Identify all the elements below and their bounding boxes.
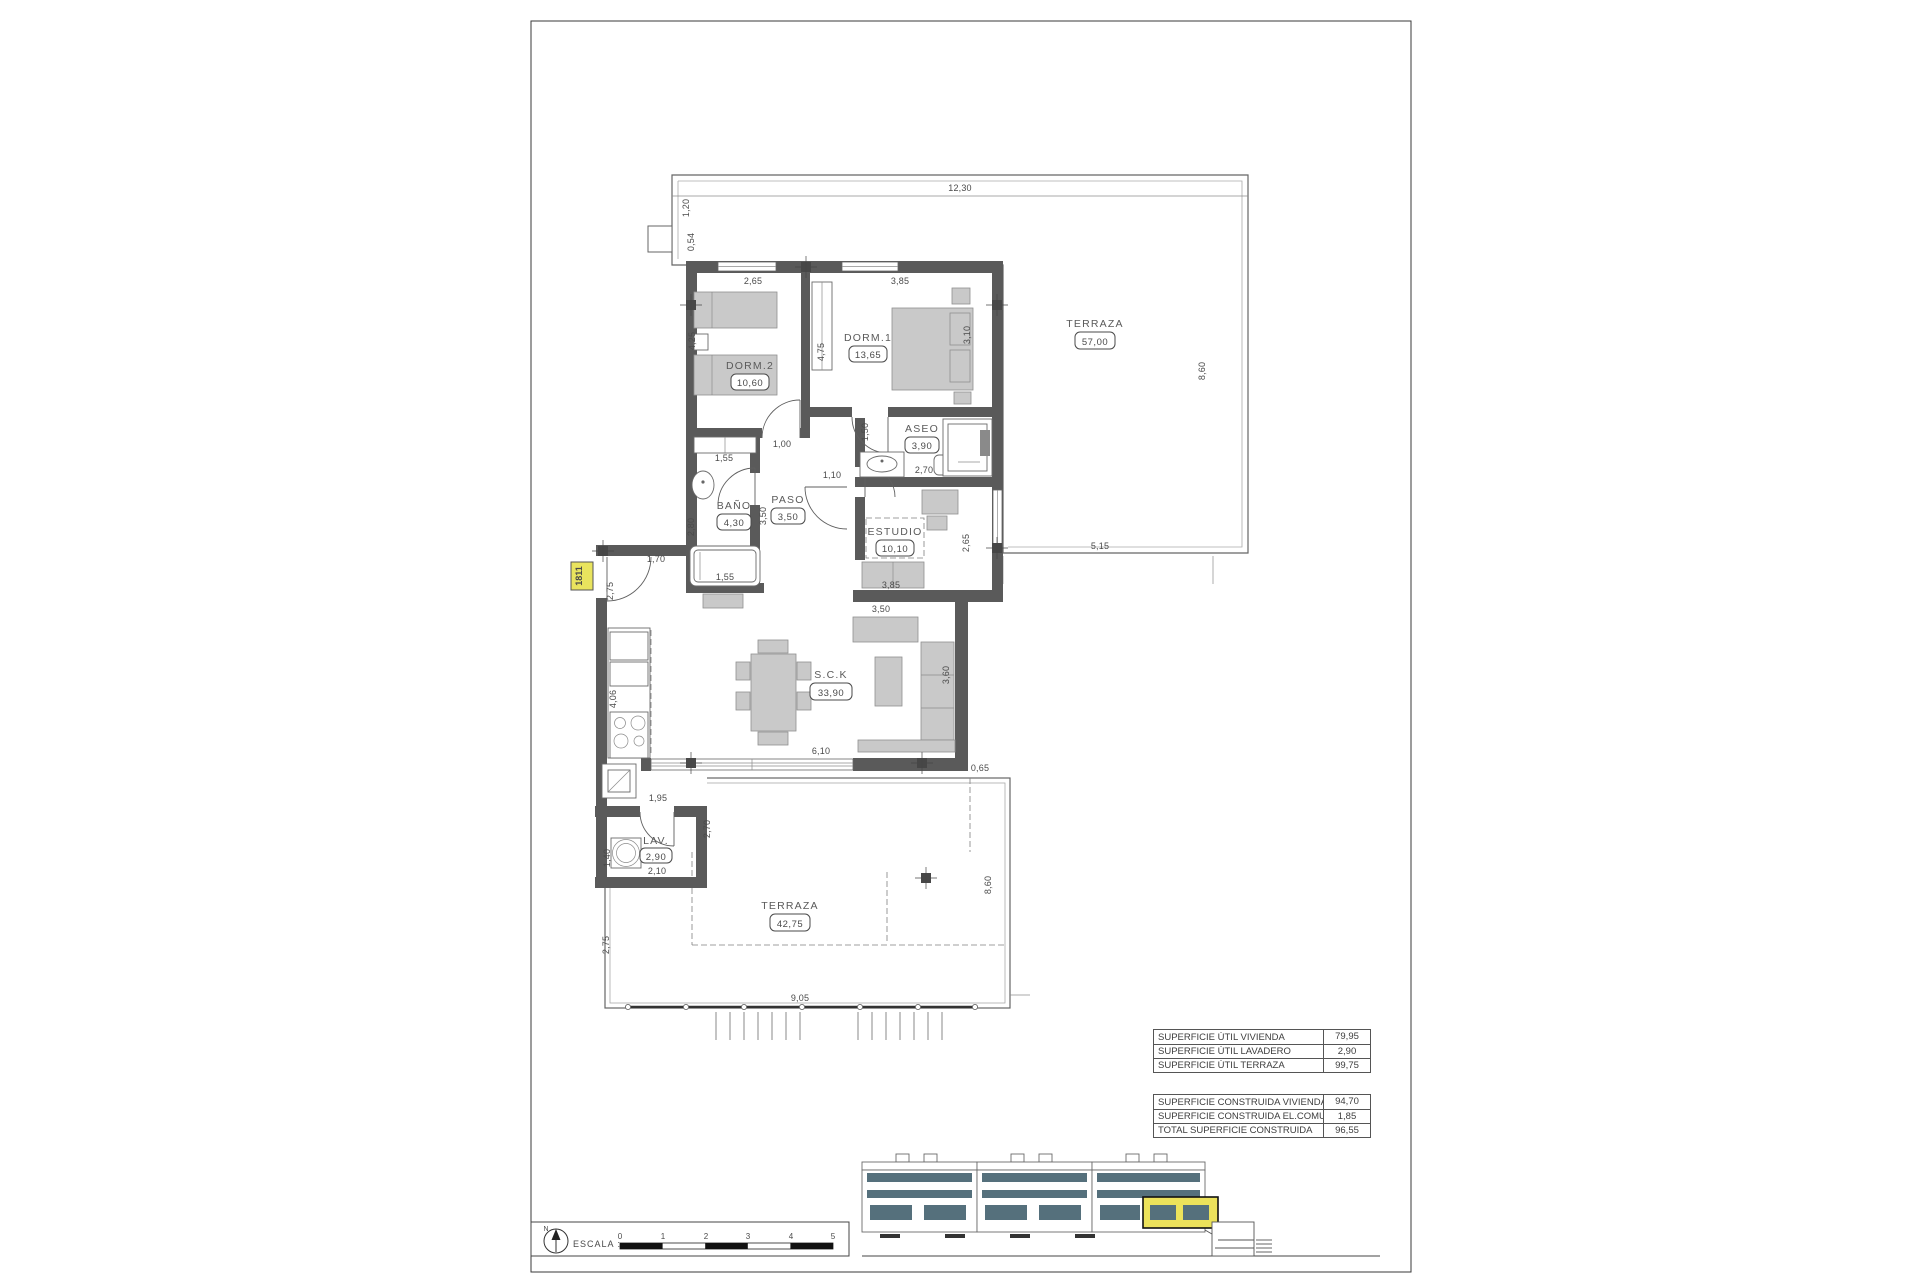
dining-table [751,654,796,731]
desk-chair [927,516,947,530]
dorm1-window [842,262,898,271]
svg-text:3,10: 3,10 [962,326,972,344]
sofa-top [853,617,918,642]
dim-terrace-top-width: 12,30 [948,183,972,193]
svg-text:5: 5 [831,1232,836,1241]
svg-text:2,65: 2,65 [961,534,971,552]
svg-text:3,50: 3,50 [778,512,799,523]
svg-text:1,00: 1,00 [773,439,791,449]
room-label-aseo: ASEO3,90 [905,423,939,453]
svg-text:1,70: 1,70 [647,554,665,564]
useful-surface-table: SUPERFICIE ÚTIL VIVIENDA 79,95 SUPERFICI… [1153,1029,1371,1073]
svg-text:DORM.1: DORM.1 [844,332,892,344]
svg-text:1,95: 1,95 [649,793,667,803]
table-row: TOTAL SUPERFICIE CONSTRUIDA 96,55 [1154,1123,1370,1137]
svg-text:2,70: 2,70 [915,465,933,475]
room-label-dorm2: DORM.210,60 [726,360,774,390]
svg-text:0: 0 [618,1232,623,1241]
svg-text:LAV.: LAV. [643,835,669,847]
coffee-table [875,657,902,706]
elevation-module [977,1154,1092,1232]
towel-radiator [980,430,990,456]
svg-text:33,90: 33,90 [818,688,844,699]
table-row: SUPERFICIE ÚTIL TERRAZA 99,75 [1154,1058,1370,1072]
dorm2-window [718,262,776,271]
table-row: SUPERFICIE CONSTRUIDA EL.COMUNES 1,85 [1154,1109,1370,1123]
svg-text:1,50: 1,50 [860,423,870,441]
svg-text:4,06: 4,06 [608,690,618,708]
svg-text:3,50: 3,50 [758,507,768,525]
svg-text:2,90: 2,90 [646,852,667,863]
svg-text:4: 4 [789,1232,794,1241]
neighbor-wall-stub [648,226,672,252]
living-sliding-door [651,759,853,770]
room-label-bano: BAÑO4,30 [717,499,752,530]
svg-text:42,75: 42,75 [777,919,803,930]
svg-text:2,80: 2,80 [686,518,696,536]
highlighted-unit [1143,1197,1218,1228]
svg-text:4,25: 4,25 [687,332,697,350]
tv-sideboard [858,740,955,752]
svg-text:0,54: 0,54 [686,233,696,251]
svg-text:BAÑO: BAÑO [717,499,752,512]
row-label: SUPERFICIE CONSTRUIDA VIVIENDA [1154,1097,1323,1108]
lav-fixtures [611,838,641,868]
svg-text:3,60: 3,60 [941,666,951,684]
room-label-dorm1: DORM.113,65 [844,332,892,362]
svg-text:2,65: 2,65 [744,276,762,286]
svg-text:4,75: 4,75 [816,343,826,361]
row-value: 1,85 [1323,1110,1370,1123]
svg-text:1,40: 1,40 [602,849,612,867]
row-value: 96,55 [1323,1124,1370,1137]
svg-text:TERRAZA: TERRAZA [761,900,818,912]
svg-text:3,50: 3,50 [872,604,890,614]
row-value: 99,75 [1323,1059,1370,1072]
svg-text:DORM.2: DORM.2 [726,360,774,372]
unit-number-tag: 1811 [571,562,593,590]
row-label: TOTAL SUPERFICIE CONSTRUIDA [1154,1125,1323,1136]
svg-text:8,60: 8,60 [983,876,993,894]
scale-box: N ESCALA : 0 1 2 3 4 5 [531,1222,849,1256]
floor-plan-sheet-page: DORM.210,60 DORM.113,65 ASEO3,90 BAÑO4,3… [0,0,1920,1280]
room-label-sck: S.C.K33,90 [810,669,852,700]
row-label: SUPERFICIE ÚTIL VIVIENDA [1154,1032,1323,1043]
svg-text:10,60: 10,60 [737,378,763,389]
row-label: SUPERFICIE ÚTIL LAVADERO [1154,1046,1323,1057]
svg-text:TERRAZA: TERRAZA [1066,318,1123,330]
hob [610,712,648,758]
svg-text:S.C.K: S.C.K [814,669,847,681]
scale-label: ESCALA : [573,1239,621,1249]
svg-text:1,55: 1,55 [716,572,734,582]
svg-text:PASO: PASO [771,494,804,506]
sofa-right [921,642,954,740]
table-row: SUPERFICIE ÚTIL VIVIENDA 79,95 [1154,1030,1370,1044]
svg-text:5,15: 5,15 [1091,541,1109,551]
svg-text:0,65: 0,65 [971,763,989,773]
floor-plan-drawing: DORM.210,60 DORM.113,65 ASEO3,90 BAÑO4,3… [0,0,1920,1280]
svg-text:3,85: 3,85 [882,580,900,590]
svg-text:2,70: 2,70 [702,820,712,838]
svg-text:1,10: 1,10 [823,470,841,480]
desk [922,490,958,514]
svg-text:4,30: 4,30 [724,518,745,529]
room-label-paso: PASO3,50 [771,494,805,524]
row-label: SUPERFICIE ÚTIL TERRAZA [1154,1060,1323,1071]
table-row: SUPERFICIE CONSTRUIDA VIVIENDA 94,70 [1154,1095,1370,1109]
svg-text:3: 3 [746,1232,751,1241]
svg-text:3,85: 3,85 [891,276,909,286]
row-value: 94,70 [1323,1095,1370,1109]
svg-text:ESTUDIO: ESTUDIO [867,526,922,538]
built-surface-table: SUPERFICIE CONSTRUIDA VIVIENDA 94,70 SUP… [1153,1094,1371,1138]
svg-text:2,10: 2,10 [648,866,666,876]
svg-text:57,00: 57,00 [1082,337,1108,348]
svg-text:2,75: 2,75 [601,936,611,954]
svg-text:6,10: 6,10 [812,746,830,756]
elevation-module [862,1154,977,1232]
row-value: 2,90 [1323,1045,1370,1058]
row-label: SUPERFICIE CONSTRUIDA EL.COMUNES [1154,1111,1323,1122]
room-label-lav: LAV.2,90 [640,835,672,863]
svg-text:10,10: 10,10 [882,544,908,555]
svg-text:13,65: 13,65 [855,350,881,361]
svg-text:2,75: 2,75 [605,582,615,600]
svg-text:9,05: 9,05 [791,993,809,1003]
estudio-window [993,490,1002,548]
svg-text:3,90: 3,90 [912,441,933,452]
table-row: SUPERFICIE ÚTIL LAVADERO 2,90 [1154,1044,1370,1058]
svg-text:1,20: 1,20 [681,199,691,217]
svg-text:1811: 1811 [574,566,584,586]
svg-text:1,55: 1,55 [715,453,733,463]
svg-text:1: 1 [661,1232,666,1241]
svg-text:ASEO: ASEO [905,423,939,435]
svg-text:8,60: 8,60 [1197,362,1207,380]
row-value: 79,95 [1323,1030,1370,1044]
svg-text:2: 2 [704,1232,709,1241]
